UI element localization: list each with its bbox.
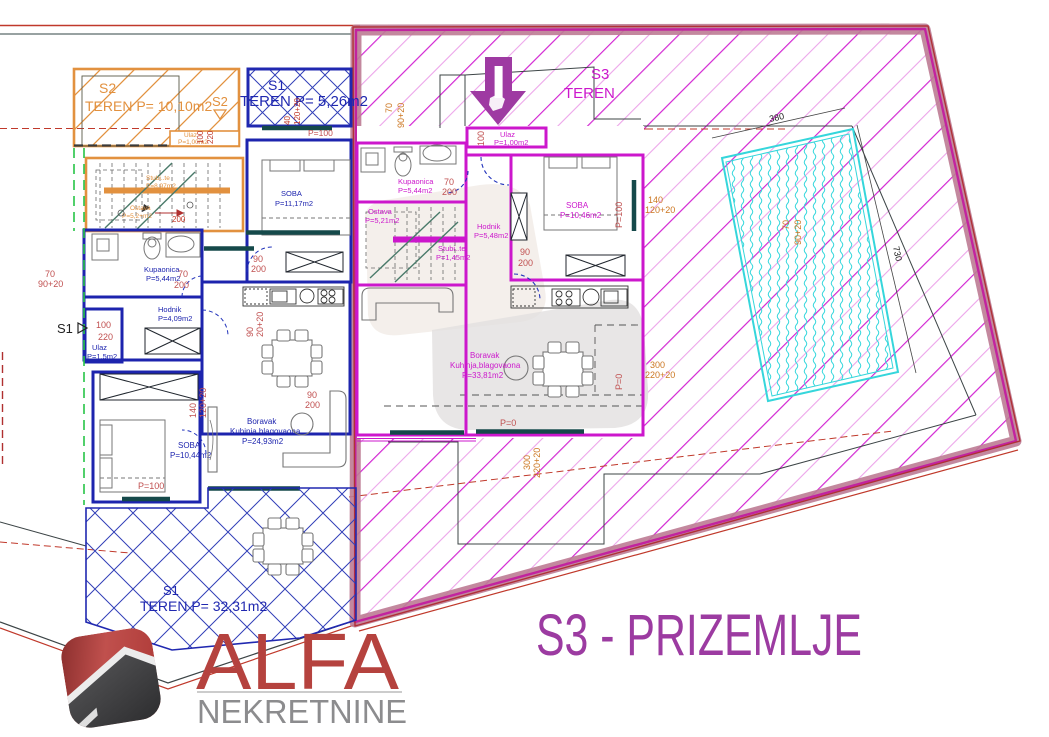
svg-text:100: 100 — [196, 130, 205, 144]
svg-text:70: 70 — [45, 269, 55, 279]
svg-text:90: 90 — [253, 254, 263, 264]
svg-text:90+20: 90+20 — [38, 279, 63, 289]
svg-text:Ulaz: Ulaz — [92, 343, 107, 352]
svg-text:Boravak: Boravak — [470, 351, 500, 360]
svg-text:Stubi..te: Stubi..te — [438, 244, 466, 253]
svg-text:Ostava: Ostava — [130, 205, 151, 212]
svg-text:TEREN P= 10,10m2: TEREN P= 10,10m2 — [85, 98, 212, 114]
svg-text:120+20: 120+20 — [198, 388, 208, 418]
svg-text:S1: S1 — [163, 583, 179, 598]
svg-text:S2: S2 — [212, 94, 228, 109]
svg-text:200: 200 — [251, 264, 266, 274]
svg-text:P=10,44m2: P=10,44m2 — [170, 451, 212, 460]
svg-text:P=1,5m2: P=1,5m2 — [87, 352, 117, 361]
svg-text:70: 70 — [384, 103, 394, 113]
svg-text:TEREN: TEREN — [564, 85, 615, 102]
svg-text:220: 220 — [206, 130, 215, 144]
svg-text:70: 70 — [781, 220, 791, 230]
svg-text:Kuhinja,blagovaona: Kuhinja,blagovaona — [230, 427, 301, 436]
svg-text:70: 70 — [178, 269, 188, 279]
svg-text:140: 140 — [648, 195, 663, 205]
svg-text:100: 100 — [476, 131, 486, 146]
svg-text:200: 200 — [172, 215, 186, 224]
svg-text:90+20: 90+20 — [793, 220, 803, 245]
svg-text:P=11,17m2: P=11,17m2 — [275, 199, 313, 208]
svg-text:P=4,09m2: P=4,09m2 — [158, 314, 192, 323]
svg-text:70: 70 — [444, 177, 454, 187]
svg-text:TEREN P= 5,26m2: TEREN P= 5,26m2 — [240, 93, 368, 110]
svg-text:90: 90 — [245, 327, 255, 337]
svg-text:Kupaonica: Kupaonica — [398, 177, 434, 186]
svg-text:SOBA: SOBA — [178, 441, 201, 450]
svg-text:300: 300 — [650, 360, 665, 370]
svg-text:40: 40 — [283, 116, 292, 125]
svg-text:SOBA: SOBA — [281, 189, 302, 198]
svg-text:P=100: P=100 — [614, 202, 624, 228]
svg-text:Boravak: Boravak — [247, 417, 277, 426]
svg-text:P=10,46m2: P=10,46m2 — [560, 211, 602, 220]
svg-text:P=1,45m2: P=1,45m2 — [436, 253, 470, 262]
svg-text:Hodnik: Hodnik — [477, 222, 501, 231]
svg-text:SOBA: SOBA — [566, 201, 589, 210]
svg-text:220+20: 220+20 — [645, 370, 675, 380]
svg-text:P=5,44m2: P=5,44m2 — [398, 186, 432, 195]
svg-text:100: 100 — [96, 320, 111, 330]
svg-text:P=0: P=0 — [614, 374, 624, 390]
svg-text:P=5,21m2: P=5,21m2 — [365, 216, 399, 225]
svg-text:P=1,00m2: P=1,00m2 — [494, 138, 528, 147]
svg-text:Kupaonica: Kupaonica — [144, 265, 180, 274]
svg-text:S1: S1 — [268, 77, 285, 93]
svg-text:200: 200 — [442, 187, 457, 197]
svg-text:P=5,2+m2: P=5,2+m2 — [122, 213, 152, 220]
svg-text:TEREN P= 32,31m2: TEREN P= 32,31m2 — [140, 598, 267, 614]
svg-text:200: 200 — [518, 258, 533, 268]
svg-text:P=24,93m2: P=24,93m2 — [242, 437, 284, 446]
svg-text:220+20: 220+20 — [532, 448, 542, 478]
svg-text:P=8,97m2: P=8,97m2 — [146, 183, 176, 190]
svg-text:140: 140 — [188, 403, 198, 418]
svg-text:P=0: P=0 — [500, 418, 516, 428]
svg-text:P=5,48m2: P=5,48m2 — [474, 231, 508, 240]
svg-text:Kuhinja,blagovaona: Kuhinja,blagovaona — [450, 361, 521, 370]
svg-text:P=100: P=100 — [138, 481, 164, 491]
svg-text:S3: S3 — [591, 66, 609, 83]
svg-text:NEKRETNINE: NEKRETNINE — [197, 693, 407, 730]
svg-text:300: 300 — [522, 455, 532, 470]
svg-text:120+20: 120+20 — [645, 205, 675, 215]
svg-text:90+20: 90+20 — [396, 103, 406, 128]
svg-text:20+20: 20+20 — [255, 312, 265, 337]
svg-text:S2: S2 — [99, 80, 116, 96]
svg-text:90: 90 — [520, 247, 530, 257]
svg-text:S1: S1 — [57, 321, 73, 336]
svg-text:200: 200 — [174, 280, 189, 290]
svg-text:S3 - PRIZEMLJE: S3 - PRIZEMLJE — [536, 603, 862, 668]
svg-text:P=100: P=100 — [308, 128, 333, 138]
svg-text:Hodnik: Hodnik — [158, 305, 182, 314]
svg-text:120+20: 120+20 — [293, 98, 302, 125]
svg-text:Stubi..te: Stubi..te — [146, 175, 170, 182]
svg-text:220: 220 — [98, 332, 113, 342]
svg-text:Ostava: Ostava — [368, 207, 393, 216]
svg-text:90: 90 — [307, 390, 317, 400]
svg-text:P=33,81m2: P=33,81m2 — [462, 371, 504, 380]
svg-text:200: 200 — [305, 400, 320, 410]
